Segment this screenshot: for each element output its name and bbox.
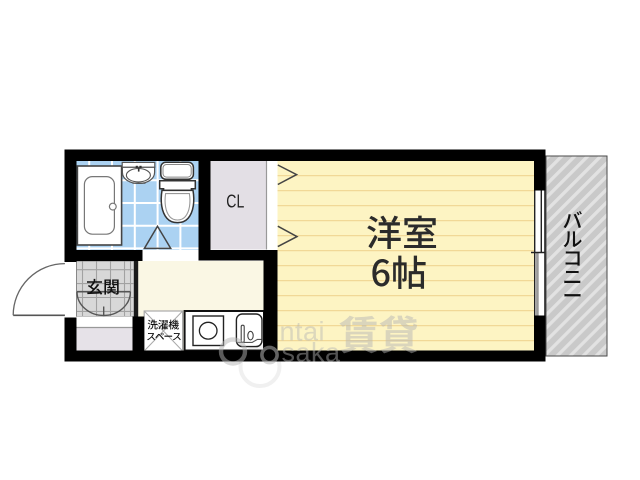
svg-text:saka: saka — [282, 338, 342, 368]
svg-text:CL: CL — [226, 191, 244, 212]
